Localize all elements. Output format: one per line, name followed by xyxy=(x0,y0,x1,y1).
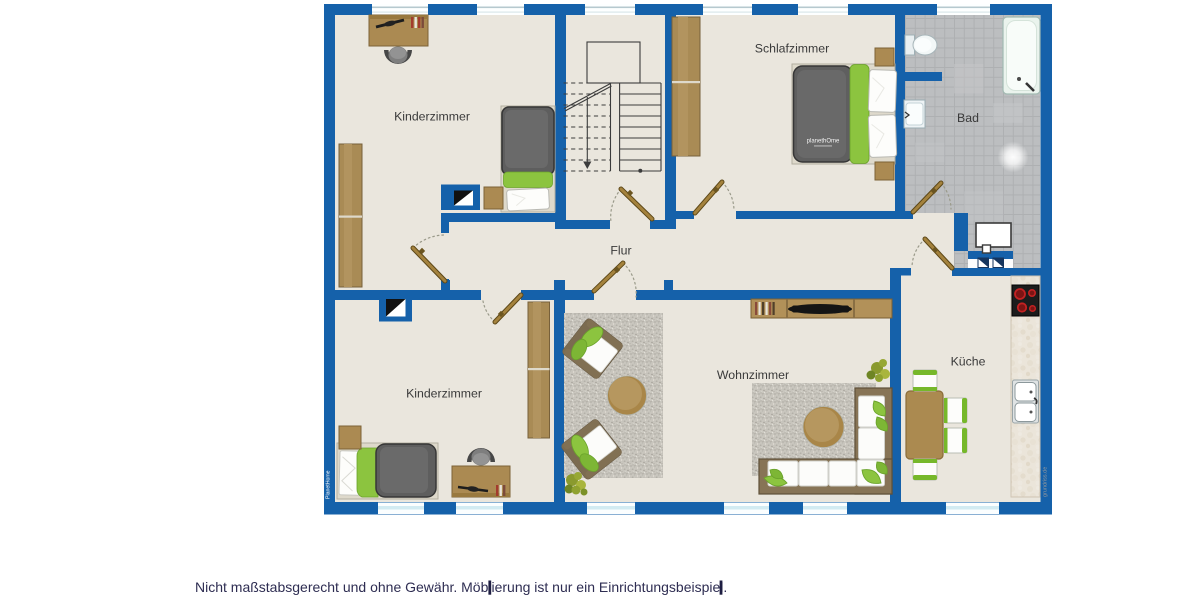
svg-text:Nicht maßstabsgerecht und ohne: Nicht maßstabsgerecht und ohne Gewähr. M… xyxy=(195,579,727,595)
svg-text:PlanetHome: PlanetHome xyxy=(326,470,332,499)
svg-text:Schlafzimmer: Schlafzimmer xyxy=(755,42,829,56)
svg-text:planethOme: planethOme xyxy=(807,139,840,145)
svg-text:Flur: Flur xyxy=(610,244,631,258)
svg-text:Küche: Küche xyxy=(951,355,986,369)
svg-text:grundriss.de: grundriss.de xyxy=(1043,467,1049,497)
svg-text:Kinderzimmer: Kinderzimmer xyxy=(406,387,482,401)
svg-text:Bad: Bad xyxy=(957,111,979,125)
svg-text:Kinderzimmer: Kinderzimmer xyxy=(394,110,470,124)
svg-text:Wohnzimmer: Wohnzimmer xyxy=(717,368,789,382)
